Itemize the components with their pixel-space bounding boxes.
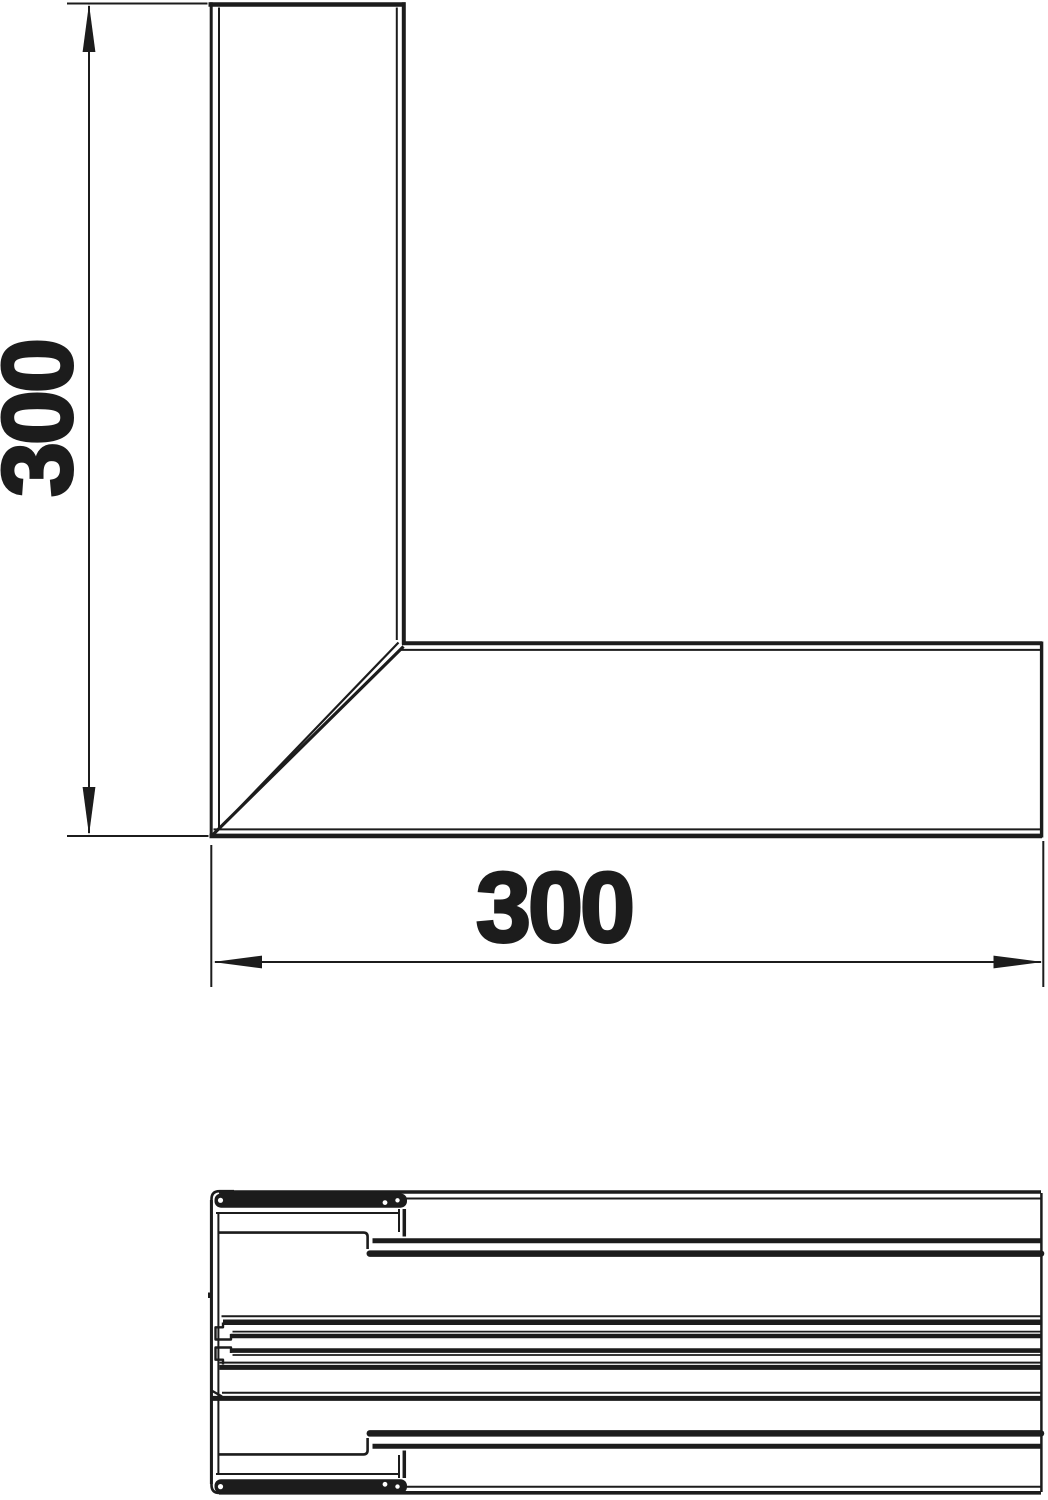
upper-lid-hook xyxy=(218,1209,1041,1254)
miter-joint xyxy=(212,643,404,836)
lower-lid-hook xyxy=(218,1433,1041,1478)
profile-top-cover-bar xyxy=(215,1194,408,1214)
bottom-cover-dot-mid xyxy=(383,1482,388,1487)
top-cover-dot-right xyxy=(395,1198,399,1202)
technical-drawing-canvas: 300 300 xyxy=(0,0,1048,1500)
line-art xyxy=(0,0,1048,1500)
top-cover-dot-mid xyxy=(383,1200,388,1205)
upper-lid-line xyxy=(218,1233,368,1249)
bottom-cover-dot-left xyxy=(218,1484,223,1489)
arrow-left-icon xyxy=(213,956,262,969)
top-view-corner-piece xyxy=(209,2,1043,837)
arrow-right-icon xyxy=(994,956,1043,969)
horizontal-dimension-label: 300 xyxy=(476,858,632,957)
miter-line-inner xyxy=(219,643,399,830)
arrow-down-icon xyxy=(83,787,96,835)
lower-lid-line xyxy=(218,1438,368,1454)
bottom-cover-fill xyxy=(215,1479,408,1493)
middle-rails xyxy=(212,1316,1042,1398)
vertical-dimension-label: 300 xyxy=(0,341,87,497)
arrow-up-icon xyxy=(83,4,96,52)
top-cover-dot-left xyxy=(218,1198,223,1203)
rail5-wall-tick xyxy=(212,1391,223,1397)
top-cover-fill xyxy=(215,1194,408,1208)
profile-left-outer-contour xyxy=(212,1191,235,1493)
profile-bottom-cover-bar xyxy=(215,1474,408,1493)
bottom-cover-dot-right xyxy=(395,1484,399,1488)
profile-section-view xyxy=(210,1191,1041,1493)
